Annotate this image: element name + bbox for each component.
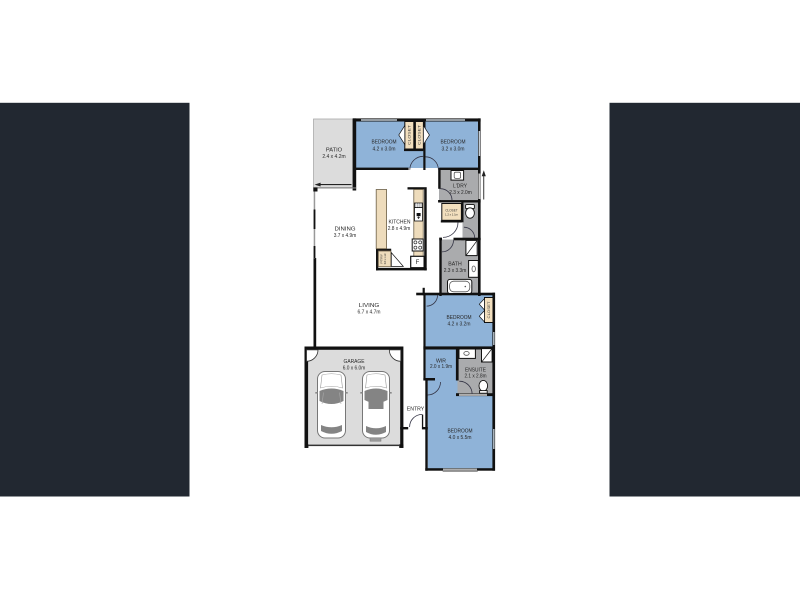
svg-text:6.7 x 4.7m: 6.7 x 4.7m [358, 309, 381, 315]
svg-text:BEDROOM: BEDROOM [448, 428, 473, 434]
svg-text:L'DRY: L'DRY [453, 183, 467, 189]
svg-text:BEDROOM: BEDROOM [372, 140, 397, 146]
svg-text:2.3 x 2.0m: 2.3 x 2.0m [449, 190, 472, 196]
svg-text:4.2 x 3.2m: 4.2 x 3.2m [448, 321, 471, 327]
svg-text:4.0 x 5.5m: 4.0 x 5.5m [449, 435, 472, 441]
svg-text:F: F [416, 260, 420, 266]
svg-text:DINING: DINING [335, 226, 356, 232]
svg-text:PATIO: PATIO [326, 148, 343, 154]
svg-text:PTRY: PTRY [379, 254, 383, 264]
svg-text:2.8 x 4.9m: 2.8 x 4.9m [388, 226, 411, 232]
svg-text:BEDROOM: BEDROOM [441, 140, 466, 146]
svg-text:CLOSET: CLOSET [487, 302, 491, 319]
svg-text:2.4 x 4.2m: 2.4 x 4.2m [322, 154, 345, 160]
svg-text:CLOSET: CLOSET [418, 125, 422, 145]
svg-text:GARAGE: GARAGE [344, 359, 365, 365]
svg-text:BEDROOM: BEDROOM [447, 315, 472, 321]
svg-text:3.2 x 3.0m: 3.2 x 3.0m [442, 146, 465, 152]
svg-text:BATH: BATH [448, 261, 462, 267]
svg-text:LIVING: LIVING [359, 303, 380, 309]
svg-text:2.1 x 2.8m: 2.1 x 2.8m [465, 373, 487, 379]
svg-text:4.2 x 3.0m: 4.2 x 3.0m [373, 146, 396, 152]
svg-text:CLOSET: CLOSET [408, 125, 412, 145]
svg-text:0.8 x 1.1m: 0.8 x 1.1m [383, 253, 387, 264]
svg-text:2.3 x 3.3m: 2.3 x 3.3m [444, 268, 467, 274]
svg-text:KITCHEN: KITCHEN [389, 219, 411, 225]
svg-text:ENTRY: ENTRY [407, 406, 425, 412]
svg-text:6.0 x 6.0m: 6.0 x 6.0m [343, 365, 366, 371]
svg-text:3.7 x 4.9m: 3.7 x 4.9m [334, 233, 357, 239]
svg-text:2.0 x 1.9m: 2.0 x 1.9m [430, 364, 452, 370]
svg-text:1.2 x 1.1m: 1.2 x 1.1m [445, 213, 458, 217]
